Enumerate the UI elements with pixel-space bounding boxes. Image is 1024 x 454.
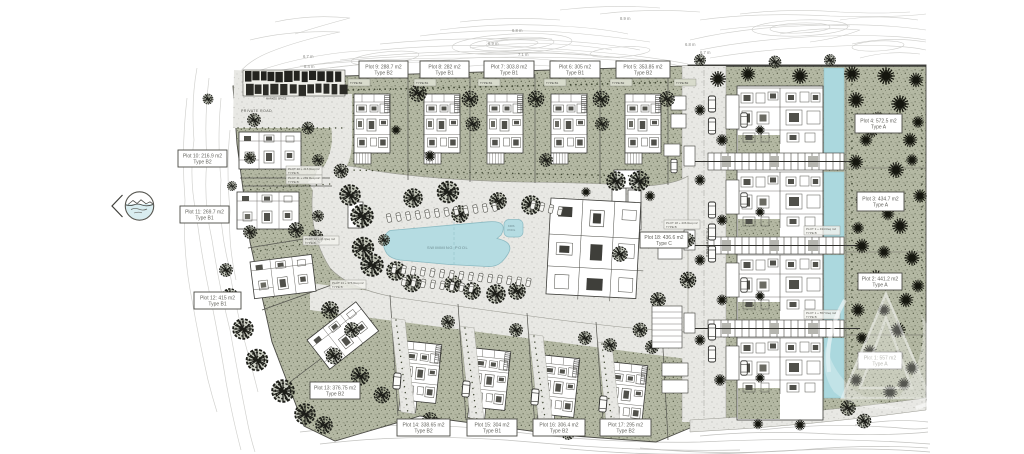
- svg-text:6.8 m: 6.8 m: [512, 28, 523, 33]
- svg-text:SWIMMING POOL: SWIMMING POOL: [427, 245, 469, 250]
- svg-text:Plot 14: 338.65 m2: Plot 14: 338.65 m2: [403, 422, 445, 428]
- svg-text:Type A: Type A: [873, 203, 889, 209]
- svg-text:8.9 m: 8.9 m: [620, 16, 631, 21]
- svg-text:6.7 m: 6.7 m: [700, 50, 711, 55]
- svg-text:Plot 6: 305 m2: Plot 6: 305 m2: [559, 64, 591, 70]
- svg-text:TYPE B1: TYPE B1: [480, 81, 493, 85]
- svg-text:TYPE B2: TYPE B2: [612, 81, 625, 85]
- svg-text:Type B2: Type B2: [326, 392, 345, 398]
- svg-text:Plot 7: 303.8 m2: Plot 7: 303.8 m2: [491, 64, 528, 70]
- svg-text:Type B1: Type B1: [566, 71, 585, 77]
- svg-text:Plot 5: 353.85 m2: Plot 5: 353.85 m2: [623, 64, 662, 70]
- svg-text:POOL: POOL: [508, 228, 516, 232]
- svg-text:Plot 12: 415 m2: Plot 12: 415 m2: [200, 295, 235, 301]
- svg-text:TYPE B: TYPE B: [666, 225, 677, 229]
- svg-text:Type B2: Type B2: [374, 71, 393, 77]
- svg-text:Type B1: Type B1: [208, 302, 227, 308]
- svg-text:Plot 11: 269.7 m2: Plot 11: 269.7 m2: [185, 209, 224, 215]
- svg-text:Plot 13: 376.75 m2: Plot 13: 376.75 m2: [314, 385, 356, 391]
- svg-text:8.4 m: 8.4 m: [304, 64, 315, 69]
- svg-text:Plot 18: 436.6 m2: Plot 18: 436.6 m2: [644, 235, 683, 241]
- svg-text:7.1 m: 7.1 m: [518, 52, 529, 57]
- svg-text:Type B2: Type B2: [616, 429, 635, 435]
- svg-text:TYPE B: TYPE B: [288, 180, 299, 184]
- svg-text:Type C: Type C: [656, 241, 672, 247]
- svg-text:6.8 m: 6.8 m: [685, 42, 696, 47]
- svg-text:Plot 4: 572.5 m2: Plot 4: 572.5 m2: [860, 118, 897, 124]
- svg-text:TYPE B: TYPE B: [332, 285, 343, 289]
- svg-text:TYPE B: TYPE B: [288, 171, 299, 175]
- svg-text:6.7 m: 6.7 m: [303, 54, 314, 59]
- svg-text:TYPE B: TYPE B: [305, 241, 316, 245]
- svg-text:Plot 17: 295 m2: Plot 17: 295 m2: [608, 422, 643, 428]
- svg-text:Type B2: Type B2: [414, 429, 433, 435]
- svg-text:Type B1: Type B1: [195, 216, 214, 222]
- svg-text:TYPE B1: TYPE B1: [416, 81, 429, 85]
- svg-text:TYPE B2: TYPE B2: [350, 81, 363, 85]
- svg-text:TYPE B1: TYPE B1: [546, 81, 559, 85]
- svg-text:Type B1: Type B1: [483, 429, 502, 435]
- svg-text:Type B1: Type B1: [500, 71, 519, 77]
- svg-text:Plot 15: 304 m2: Plot 15: 304 m2: [474, 422, 509, 428]
- svg-text:TYPE B: TYPE B: [806, 315, 817, 319]
- svg-text:TYPE B: TYPE B: [806, 231, 817, 235]
- svg-text:Plot 3: 434.7 m2: Plot 3: 434.7 m2: [862, 196, 899, 202]
- svg-text:Type B1: Type B1: [435, 71, 454, 77]
- svg-text:Type A: Type A: [871, 125, 887, 131]
- svg-text:6.9 m: 6.9 m: [488, 41, 499, 46]
- svg-text:PRIVATE ROAD: PRIVATE ROAD: [241, 109, 272, 113]
- svg-text:Plot 10: 216.9 m2: Plot 10: 216.9 m2: [183, 153, 222, 159]
- svg-text:Type B2: Type B2: [634, 71, 653, 77]
- svg-text:Plot 8: 282 m2: Plot 8: 282 m2: [428, 64, 460, 70]
- svg-text:MARKED SPACE: MARKED SPACE: [266, 97, 287, 101]
- svg-text:Type B2: Type B2: [193, 160, 212, 166]
- svg-text:Plot 16: 306.4 m2: Plot 16: 306.4 m2: [539, 422, 578, 428]
- svg-text:Plot 9: 288.7 m2: Plot 9: 288.7 m2: [365, 64, 402, 70]
- svg-text:Type B2: Type B2: [550, 429, 569, 435]
- svg-text:TYPE B2: TYPE B2: [676, 81, 689, 85]
- svg-text:Type A: Type A: [872, 283, 888, 289]
- svg-text:Plot 2: 441.2 m2: Plot 2: 441.2 m2: [862, 276, 899, 282]
